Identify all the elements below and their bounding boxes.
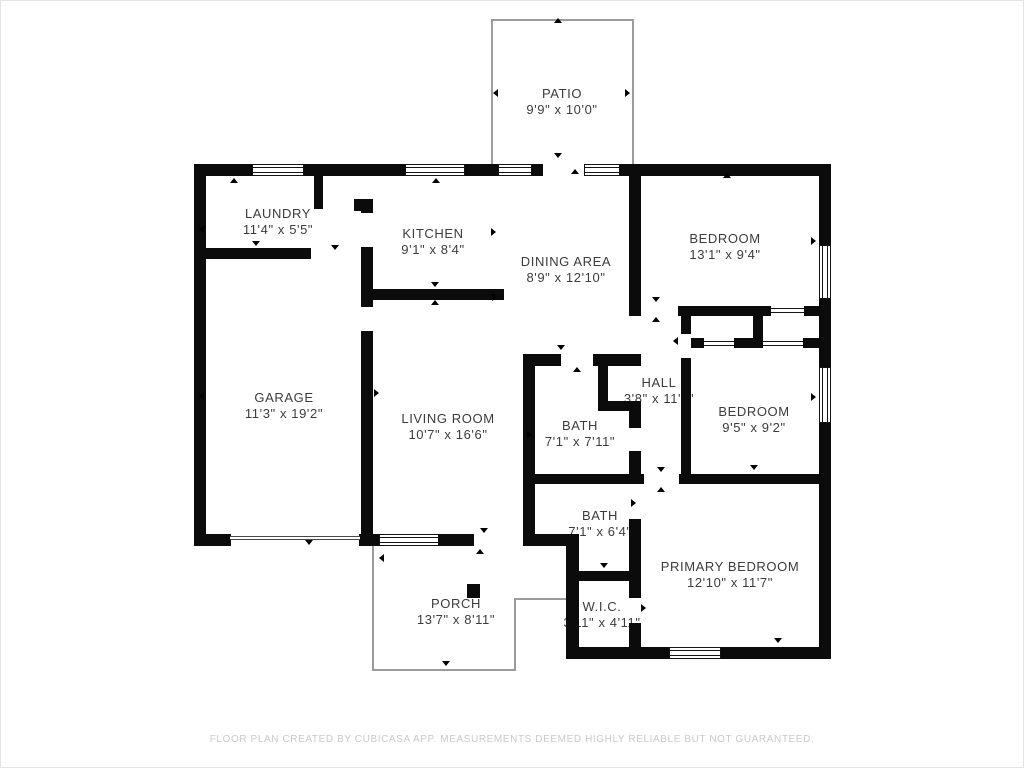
- room-dims: 12'10" x 11'7": [661, 575, 800, 591]
- porch-post: [467, 584, 480, 598]
- room-dims: 10'7" x 16'6": [401, 427, 494, 443]
- room-name: BEDROOM: [718, 404, 789, 420]
- door-marker: [230, 178, 238, 183]
- room-dims: 9'1" x 8'4": [401, 242, 464, 258]
- wall: [523, 354, 561, 366]
- wall: [304, 164, 405, 176]
- wall: [361, 199, 373, 213]
- room-label-laundry: LAUNDRY 11'4" x 5'5": [243, 206, 313, 238]
- door-marker: [723, 173, 731, 178]
- wall: [194, 164, 206, 546]
- door-marker: [527, 431, 532, 439]
- wall: [439, 534, 474, 546]
- porch-outline: [514, 598, 567, 600]
- room-label-bath1: BATH 7'1" x 7'11": [545, 418, 615, 450]
- door-marker: [774, 638, 782, 643]
- door-marker: [374, 389, 379, 397]
- door-marker: [432, 178, 440, 183]
- wall: [359, 534, 379, 546]
- wall: [629, 401, 641, 428]
- wall: [678, 306, 771, 316]
- wall: [681, 314, 691, 334]
- wall: [629, 623, 641, 649]
- footer-note: FLOOR PLAN CREATED BY CUBICASA APP. MEAS…: [1, 734, 1023, 745]
- door-marker: [625, 89, 630, 97]
- wall: [524, 474, 644, 484]
- window: [819, 245, 831, 299]
- patio-outline: [632, 19, 634, 164]
- room-name: BATH: [568, 508, 631, 524]
- patio-outline: [491, 19, 634, 21]
- floor-plan: PATIO 9'9" x 10'0" LAUNDRY 11'4" x 5'5" …: [0, 0, 1024, 768]
- closet-sliding-door: [771, 308, 804, 313]
- room-label-patio: PATIO 9'9" x 10'0": [526, 86, 597, 118]
- wall: [629, 164, 641, 314]
- room-dims: 11'3" x 19'2": [245, 406, 323, 422]
- wall: [532, 164, 543, 176]
- door-marker: [652, 297, 660, 302]
- room-label-porch: PORCH 13'7" x 8'11": [417, 596, 495, 628]
- wall: [523, 354, 535, 546]
- door-marker: [557, 345, 565, 350]
- closet-sliding-door: [704, 341, 734, 346]
- room-name: LAUNDRY: [243, 206, 313, 222]
- window: [498, 164, 532, 176]
- room-dims: 7'1" x 7'11": [545, 434, 615, 450]
- room-label-kitchen: KITCHEN 9'1" x 8'4": [401, 226, 464, 258]
- wall: [194, 248, 311, 259]
- room-name: PORCH: [417, 596, 495, 612]
- door-marker: [480, 528, 488, 533]
- room-name: BATH: [545, 418, 615, 434]
- porch-outline: [514, 598, 516, 670]
- wall: [361, 247, 373, 307]
- door-marker: [305, 540, 313, 545]
- room-label-primary: PRIMARY BEDROOM 12'10" x 11'7": [661, 559, 800, 591]
- door-marker: [431, 282, 439, 287]
- wall: [803, 338, 819, 348]
- window: [405, 164, 465, 176]
- door-marker: [442, 661, 450, 666]
- door-marker: [199, 225, 204, 233]
- room-label-garage: GARAGE 11'3" x 19'2": [245, 390, 323, 422]
- garage-door: [230, 536, 360, 540]
- wall: [734, 338, 763, 348]
- door-marker: [657, 467, 665, 472]
- door-marker: [331, 245, 339, 250]
- room-dims: 13'1" x 9'4": [689, 247, 760, 263]
- room-label-living: LIVING ROOM 10'7" x 16'6": [401, 411, 494, 443]
- porch-outline: [372, 669, 516, 671]
- door-marker: [431, 300, 439, 305]
- door-marker: [673, 337, 678, 345]
- door-marker: [379, 554, 384, 562]
- wall: [566, 546, 579, 659]
- door-marker: [657, 487, 665, 492]
- wall: [804, 306, 819, 316]
- wall: [629, 451, 641, 476]
- door-marker: [600, 563, 608, 568]
- room-dims: 11'4" x 5'5": [243, 222, 313, 238]
- room-label-bedroom1: BEDROOM 13'1" x 9'4": [689, 231, 760, 263]
- wall: [629, 519, 641, 579]
- door-marker: [491, 228, 496, 236]
- wall: [373, 289, 504, 300]
- window: [669, 647, 721, 659]
- wall: [579, 571, 641, 581]
- room-dims: 8'9" x 12'10": [521, 270, 611, 286]
- wall: [194, 534, 231, 546]
- door-marker: [493, 89, 498, 97]
- room-name: PATIO: [526, 86, 597, 102]
- room-label-dining: DINING AREA 8'9" x 12'10": [521, 254, 611, 286]
- wall: [598, 363, 608, 403]
- window: [379, 534, 439, 546]
- door-marker: [652, 317, 660, 322]
- room-name: KITCHEN: [401, 226, 464, 242]
- door-marker: [641, 604, 646, 612]
- door-marker: [573, 367, 581, 372]
- wall: [361, 331, 373, 534]
- room-name: PRIMARY BEDROOM: [661, 559, 800, 575]
- room-dims: 13'7" x 8'11": [417, 612, 495, 628]
- room-label-bedroom2: BEDROOM 9'5" x 9'2": [718, 404, 789, 436]
- porch-outline: [372, 546, 374, 671]
- room-dims: 9'9" x 10'0": [526, 102, 597, 118]
- door-marker: [199, 392, 204, 400]
- room-name: BEDROOM: [689, 231, 760, 247]
- door-marker: [476, 549, 484, 554]
- wall: [314, 176, 323, 209]
- wall: [681, 358, 691, 476]
- door-marker: [811, 237, 816, 245]
- closet-sliding-door: [763, 341, 803, 346]
- room-name: GARAGE: [245, 390, 323, 406]
- door-marker: [252, 241, 260, 246]
- wall: [679, 474, 819, 484]
- wall: [629, 306, 641, 316]
- door-marker: [631, 499, 636, 507]
- window: [252, 164, 304, 176]
- room-dims: 9'5" x 9'2": [718, 420, 789, 436]
- window: [819, 367, 831, 423]
- door-marker: [492, 293, 497, 301]
- door-marker: [750, 465, 758, 470]
- window: [584, 164, 620, 176]
- door-marker: [571, 169, 579, 174]
- door-marker: [554, 153, 562, 158]
- door-marker: [811, 393, 816, 401]
- room-name: DINING AREA: [521, 254, 611, 270]
- room-name: LIVING ROOM: [401, 411, 494, 427]
- door-marker: [554, 18, 562, 23]
- wall: [465, 164, 498, 176]
- wall: [629, 581, 641, 598]
- wall: [691, 338, 704, 348]
